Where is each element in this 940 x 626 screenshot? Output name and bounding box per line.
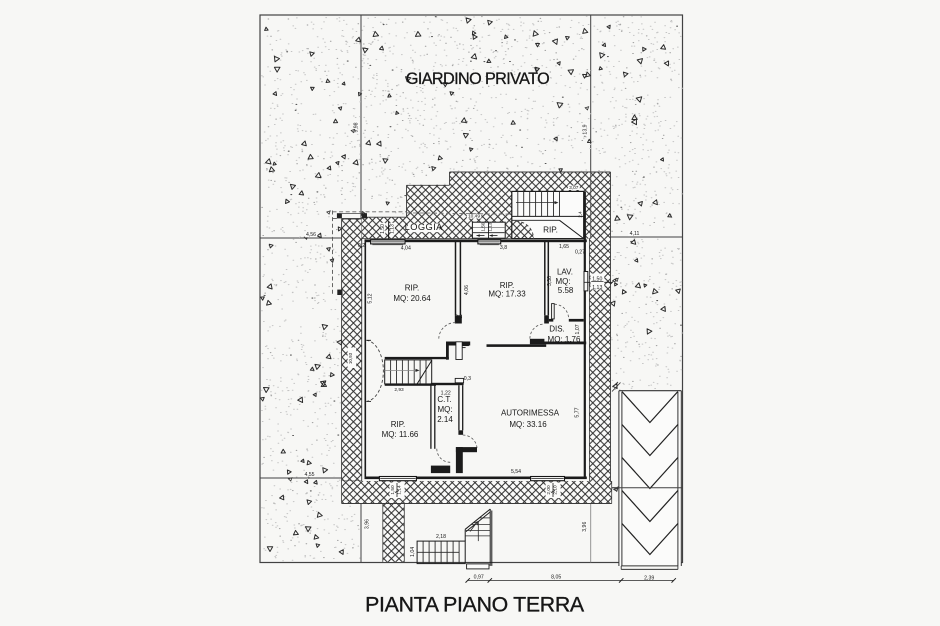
svg-text:RIP.: RIP. bbox=[543, 225, 558, 234]
svg-text:1,50: 1,50 bbox=[380, 224, 386, 234]
svg-text:4,55: 4,55 bbox=[304, 472, 314, 478]
svg-text:MQ: 20.64: MQ: 20.64 bbox=[393, 294, 431, 303]
svg-text:1,07: 1,07 bbox=[575, 324, 581, 334]
svg-text:4,11: 4,11 bbox=[630, 231, 640, 237]
svg-text:4,06: 4,06 bbox=[464, 285, 470, 295]
svg-text:1,04: 1,04 bbox=[410, 547, 416, 557]
svg-text:5.58: 5.58 bbox=[558, 286, 574, 295]
svg-text:MQ: 11.66: MQ: 11.66 bbox=[382, 430, 419, 439]
svg-text:3,07: 3,07 bbox=[569, 185, 579, 191]
svg-text:MQ: 33.16: MQ: 33.16 bbox=[509, 420, 547, 429]
svg-text:0,3: 0,3 bbox=[464, 376, 471, 382]
svg-text:MQ:: MQ: bbox=[555, 277, 570, 286]
svg-text:PIANTA PIANO TERRA: PIANTA PIANO TERRA bbox=[365, 593, 585, 617]
svg-text:MQ:: MQ: bbox=[437, 405, 452, 414]
svg-text:5,77: 5,77 bbox=[575, 407, 581, 417]
svg-text:8,05: 8,05 bbox=[551, 574, 561, 580]
svg-text:3,38: 3,38 bbox=[547, 276, 553, 286]
svg-text:0,27: 0,27 bbox=[575, 250, 585, 256]
svg-text:1,13: 1,13 bbox=[592, 285, 602, 291]
svg-text:1,50: 1,50 bbox=[390, 485, 396, 495]
svg-text:0,2: 0,2 bbox=[358, 243, 365, 249]
svg-text:LOGGIA: LOGGIA bbox=[405, 222, 443, 232]
svg-text:10,93: 10,93 bbox=[348, 352, 353, 364]
svg-text:13,9: 13,9 bbox=[582, 124, 588, 134]
svg-text:4,56: 4,56 bbox=[306, 232, 316, 238]
svg-text:AUTORIMESSA: AUTORIMESSA bbox=[501, 408, 560, 417]
svg-text:DIS.: DIS. bbox=[549, 324, 565, 333]
svg-text:4,04: 4,04 bbox=[401, 246, 411, 252]
svg-text:1,22: 1,22 bbox=[441, 390, 451, 396]
svg-text:GIARDINO PRIVATO: GIARDINO PRIVATO bbox=[406, 70, 549, 88]
svg-text:RIP.: RIP. bbox=[391, 420, 406, 429]
svg-text:3,8: 3,8 bbox=[500, 245, 507, 251]
svg-text:C.T.: C.T. bbox=[437, 395, 451, 404]
svg-text:5,54: 5,54 bbox=[511, 469, 521, 475]
svg-text:0,3: 0,3 bbox=[455, 314, 462, 320]
svg-text:1,13: 1,13 bbox=[390, 224, 396, 234]
svg-text:1,06: 1,06 bbox=[564, 341, 571, 345]
svg-text:2.14: 2.14 bbox=[437, 415, 453, 424]
svg-text:MQ: 17.33: MQ: 17.33 bbox=[488, 290, 526, 299]
svg-text:0,97: 0,97 bbox=[474, 574, 484, 580]
svg-text:1,50: 1,50 bbox=[480, 222, 485, 231]
svg-text:10,49: 10,49 bbox=[468, 214, 480, 220]
svg-text:1,65: 1,65 bbox=[559, 244, 569, 250]
svg-text:3,96: 3,96 bbox=[365, 519, 371, 529]
svg-text:2,00: 2,00 bbox=[546, 485, 552, 495]
svg-text:5,12: 5,12 bbox=[368, 293, 374, 303]
svg-text:RIP.: RIP. bbox=[405, 283, 420, 292]
svg-text:2,4: 2,4 bbox=[578, 211, 583, 218]
svg-text:2,93: 2,93 bbox=[394, 387, 404, 393]
svg-text:2,18: 2,18 bbox=[436, 534, 446, 540]
svg-text:1,50: 1,50 bbox=[592, 277, 602, 283]
svg-text:LAV.: LAV. bbox=[557, 268, 573, 277]
svg-text:3,96: 3,96 bbox=[582, 522, 588, 532]
